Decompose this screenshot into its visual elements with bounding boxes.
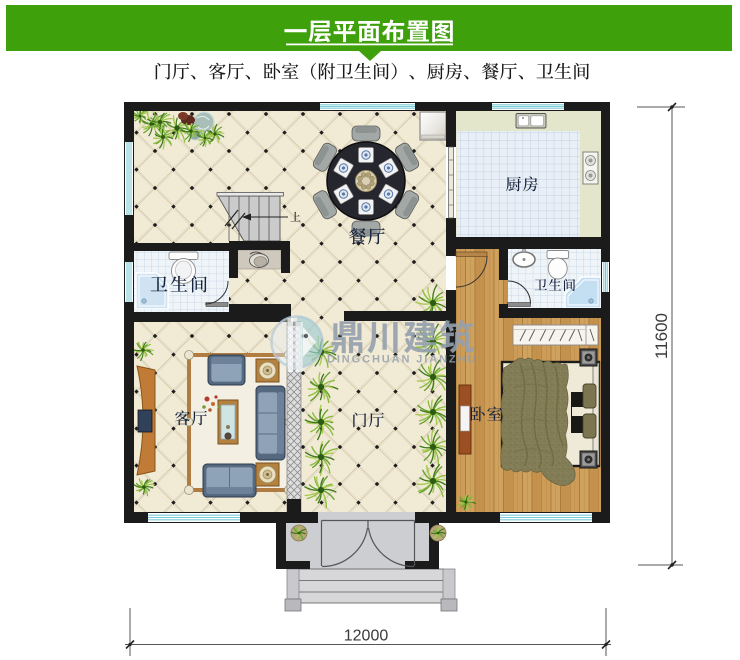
svg-text:11600: 11600 — [652, 313, 671, 359]
svg-text:DINGCHUAN JIANZHU: DINGCHUAN JIANZHU — [327, 354, 477, 366]
svg-text:12000: 12000 — [344, 628, 389, 645]
